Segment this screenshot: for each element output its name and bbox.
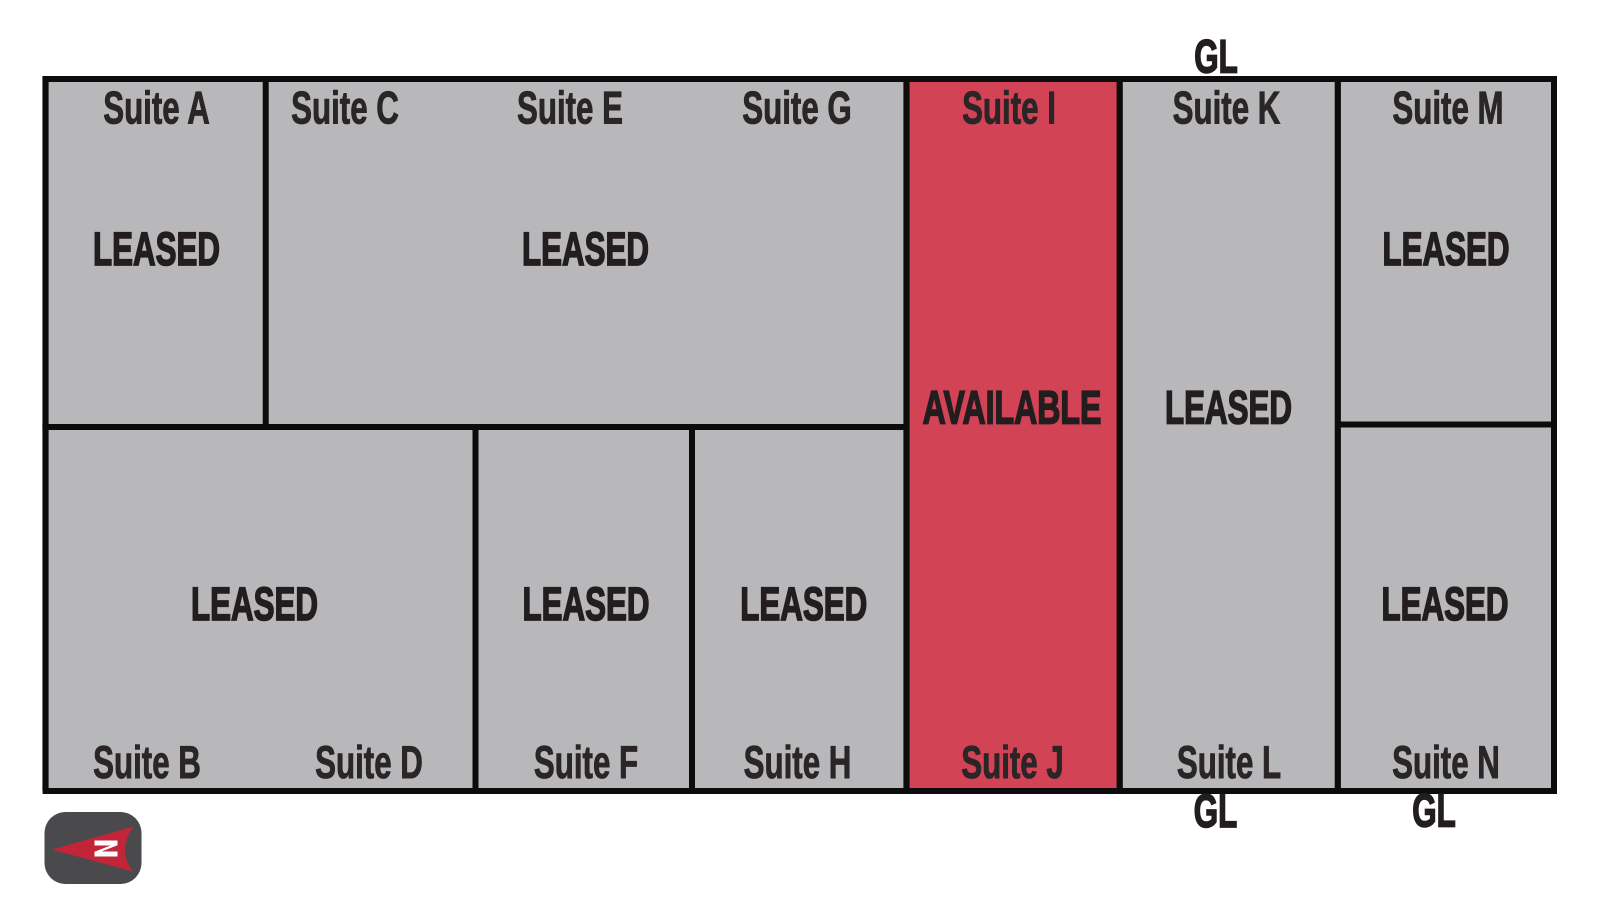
svg-text:Suite D: Suite D: [315, 736, 423, 788]
svg-text:LEASED: LEASED: [1383, 222, 1510, 275]
svg-text:Suite M: Suite M: [1392, 82, 1503, 134]
svg-text:Suite F: Suite F: [534, 736, 638, 788]
svg-text:LEASED: LEASED: [1382, 577, 1509, 630]
svg-text:LEASED: LEASED: [740, 577, 867, 630]
svg-text:Suite I: Suite I: [962, 82, 1056, 134]
svg-text:Suite K: Suite K: [1173, 82, 1281, 134]
svg-text:LEASED: LEASED: [191, 577, 318, 630]
svg-text:Suite L: Suite L: [1177, 736, 1281, 788]
svg-text:LEASED: LEASED: [522, 222, 649, 275]
svg-text:Suite C: Suite C: [291, 82, 399, 134]
svg-text:Suite G: Suite G: [742, 82, 852, 134]
svg-text:LEASED: LEASED: [93, 222, 220, 275]
svg-text:Suite E: Suite E: [517, 82, 623, 134]
svg-text:Suite A: Suite A: [103, 82, 210, 134]
svg-text:Suite B: Suite B: [93, 736, 201, 788]
svg-text:Suite H: Suite H: [744, 736, 852, 788]
svg-text:GL: GL: [1194, 30, 1237, 83]
svg-text:AVAILABLE: AVAILABLE: [923, 380, 1102, 433]
svg-text:GL: GL: [1412, 784, 1455, 837]
svg-text:LEASED: LEASED: [1165, 380, 1292, 433]
svg-text:Suite J: Suite J: [961, 736, 1064, 788]
svg-text:GL: GL: [1194, 784, 1237, 837]
svg-text:LEASED: LEASED: [523, 577, 650, 630]
svg-text:Suite N: Suite N: [1392, 736, 1500, 788]
